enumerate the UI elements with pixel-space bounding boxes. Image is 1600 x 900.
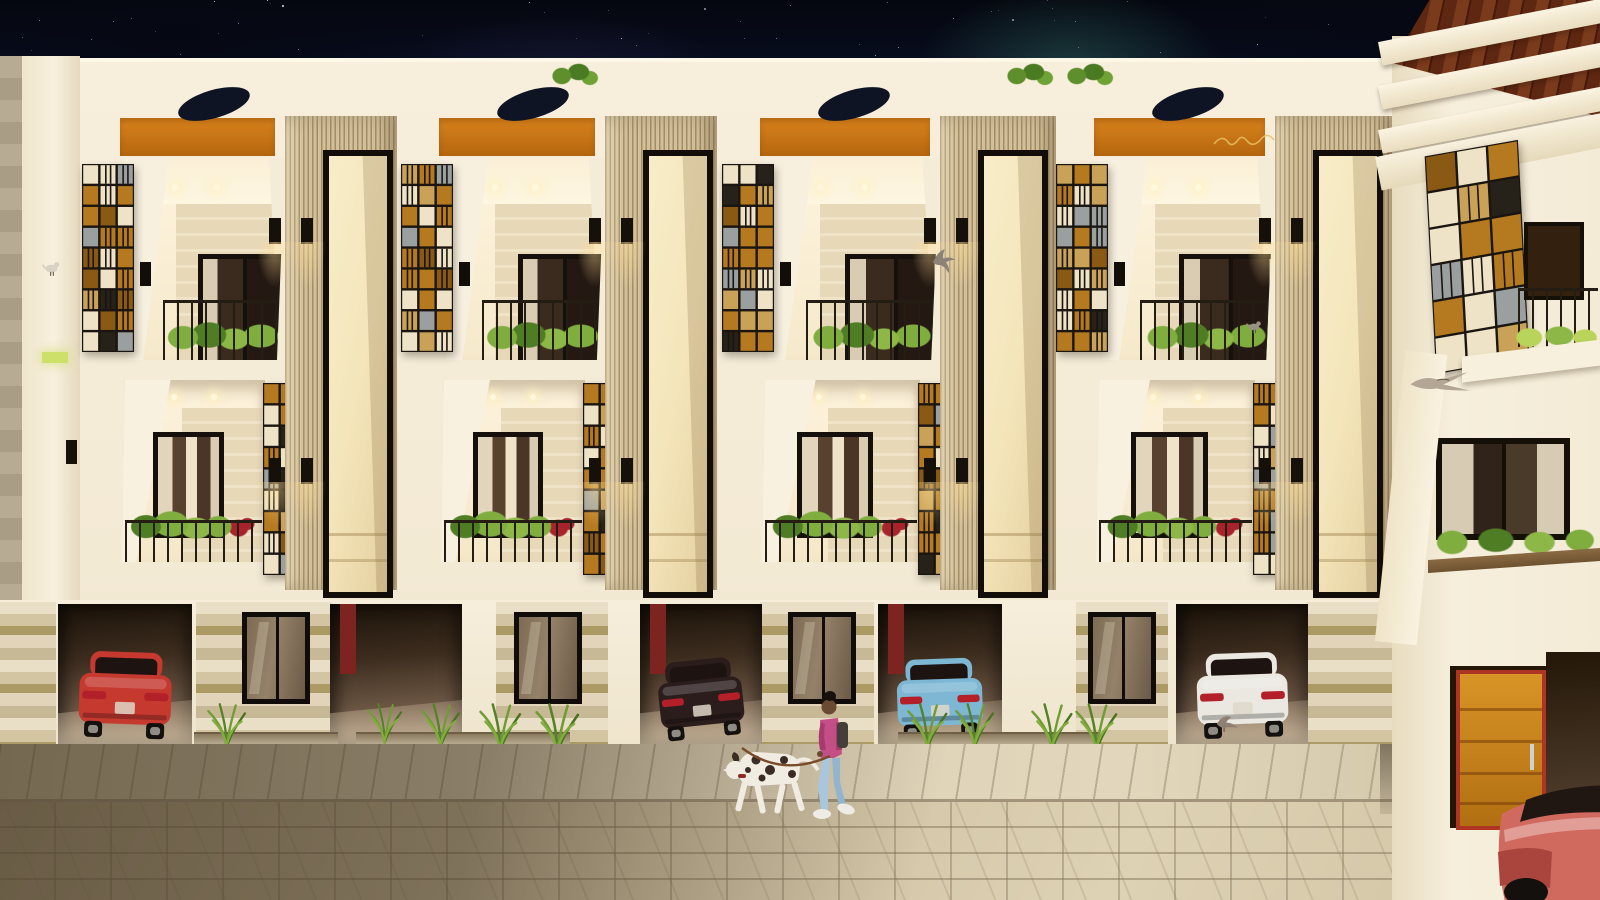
wall-sconce [924, 218, 936, 244]
car-dark [642, 651, 760, 744]
tower-tall-window [643, 150, 713, 598]
downlight [817, 184, 824, 191]
gold-script-decoration [1212, 132, 1276, 150]
middle-balcony-recess [762, 380, 920, 562]
ground-window-reflection [1095, 622, 1116, 694]
tall-window-floor-line [649, 559, 707, 562]
wall-sconce [1259, 218, 1271, 244]
downlight [1150, 394, 1156, 400]
downlight [816, 394, 822, 400]
stained-glass-panel-upper [1056, 164, 1108, 352]
middle-balcony-recess [1096, 380, 1255, 562]
pigeon-svg [42, 258, 82, 284]
townhouse-row [0, 0, 1600, 900]
stained-glass-panel-upper [82, 164, 134, 352]
wall-sconce [1291, 458, 1303, 484]
ground-window-reflection [795, 622, 816, 694]
unit-orange-band [120, 118, 275, 156]
sconce-glow [1278, 482, 1316, 528]
unit-orange-band [439, 118, 595, 156]
tall-window-floor-line [1319, 559, 1377, 562]
balcony-railing [444, 520, 582, 562]
grass-tuft-svg [420, 702, 461, 748]
parapet-highlight [20, 58, 1396, 62]
tall-window-floor-line [649, 533, 707, 536]
wall-sconce [956, 218, 968, 244]
leash-svg [742, 738, 834, 778]
left-building-sconce [66, 440, 77, 464]
stained-glass-panel-upper-glass [82, 164, 134, 352]
balcony-railing [765, 520, 917, 562]
wall-sconce [1259, 458, 1271, 484]
stone-pier [0, 602, 56, 744]
middle-balcony-recess [122, 380, 265, 562]
balcony-wall-lamp [459, 262, 470, 286]
pigeon-gliding-2 [1408, 368, 1470, 430]
door-groove [1460, 708, 1542, 711]
middle-balcony-recess [441, 380, 585, 562]
car-salmon [1492, 756, 1600, 900]
wall-sconce [589, 458, 601, 484]
tall-window-floor-line [1319, 533, 1377, 536]
ground-window [514, 612, 582, 704]
tall-window-shadow-wedge [329, 156, 387, 592]
tall-window-floor-line [329, 559, 387, 562]
tall-window-shadow-wedge [1319, 156, 1377, 592]
wall-sconce [924, 458, 936, 484]
wall-sconce [589, 218, 601, 244]
ground-window-reflection [521, 622, 542, 694]
ground-window [242, 612, 310, 704]
balcony-railing [806, 300, 933, 360]
pigeon-svg [930, 248, 970, 274]
wall-sconce [269, 458, 281, 484]
ground-window-reflection [249, 622, 270, 694]
grass-tuft [206, 702, 247, 748]
car-salmon-svg [1492, 756, 1600, 900]
grass-tuft-svg [906, 702, 949, 749]
grass-tuft [366, 702, 403, 743]
stained-glass-panel-upper-glass [401, 164, 453, 352]
stained-glass-panel-upper-glass [722, 164, 774, 352]
grass-tuft [954, 702, 995, 748]
grass-tuft-svg [954, 702, 995, 748]
balcony-wall-lamp [780, 262, 791, 286]
roof-plant [1060, 52, 1116, 92]
stained-glass-panel-upper-glass [1056, 164, 1108, 352]
ground-window [1088, 612, 1156, 704]
pigeon-flying-0 [930, 248, 970, 288]
architectural-render-scene [0, 0, 1600, 900]
wall-sconce [621, 218, 633, 244]
ground-window-mullion [276, 617, 279, 699]
garage-back-door [340, 604, 356, 674]
tall-window-shadow-wedge [984, 156, 1042, 592]
sconce-glow [943, 482, 981, 528]
unit-orange-band [760, 118, 930, 156]
car-red-svg [63, 646, 187, 744]
roof-plant [545, 52, 601, 92]
grass-tuft [420, 702, 461, 748]
door-groove [1460, 740, 1542, 743]
balcony-railing [125, 520, 262, 562]
stained-glass-panel-upper [401, 164, 453, 352]
garage-opening [58, 604, 192, 744]
wall-sconce [621, 458, 633, 484]
wall-sconce [1291, 218, 1303, 244]
pigeon-svg [1214, 712, 1254, 738]
grass-tuft [906, 702, 949, 749]
wall-sconce [269, 218, 281, 244]
stained-glass-panel-upper [722, 164, 774, 352]
left-building-accent-light [42, 352, 68, 363]
sconce-glow [288, 242, 326, 288]
downlight [492, 184, 499, 191]
tall-window-shadow-wedge [649, 156, 707, 592]
gold-script-svg [1212, 132, 1276, 150]
tower-tall-window [978, 150, 1048, 598]
car-red [63, 646, 187, 744]
balcony-wall-lamp [1114, 262, 1125, 286]
ground-window-mullion [548, 617, 551, 699]
tall-window-floor-line [984, 559, 1042, 562]
pigeon-perched-4 [42, 258, 82, 298]
car-dark-svg [642, 651, 760, 744]
pigeon-svg [1408, 368, 1470, 409]
wall-sconce [301, 218, 313, 244]
downlight [490, 394, 496, 400]
roof-plant [1000, 52, 1056, 92]
ground-window [788, 612, 856, 704]
wall-sconce [301, 458, 313, 484]
balcony-railing [1099, 520, 1252, 562]
downlight [1195, 394, 1201, 400]
pigeon-ground-3 [1214, 712, 1254, 752]
pigeon-perched-1 [1246, 318, 1280, 352]
downlight [171, 394, 177, 400]
tall-window-floor-line [329, 533, 387, 536]
grass-tuft-svg [366, 702, 403, 743]
garage-opening [640, 604, 762, 744]
downlight [211, 394, 217, 400]
tower-tall-window [1313, 150, 1383, 598]
sconce-glow [608, 482, 646, 528]
sconce-glow [288, 482, 326, 528]
sconce-glow [608, 242, 646, 288]
downlight [530, 394, 536, 400]
wall-sconce [956, 458, 968, 484]
sconce-glow [1278, 242, 1316, 288]
ground-window-mullion [1122, 617, 1125, 699]
balcony-railing [482, 300, 599, 360]
dog-leash [742, 738, 834, 778]
downlight [861, 184, 868, 191]
balcony-wall-lamp [140, 262, 151, 286]
pigeon-svg [1246, 318, 1280, 340]
downlight [213, 184, 220, 191]
tall-window-floor-line [984, 533, 1042, 536]
balcony-railing [163, 300, 279, 360]
downlight [860, 394, 866, 400]
grass-tuft-svg [206, 702, 247, 748]
tower-tall-window [323, 150, 393, 598]
left-building-stone-strip [0, 56, 22, 646]
ground-window-mullion [822, 617, 825, 699]
